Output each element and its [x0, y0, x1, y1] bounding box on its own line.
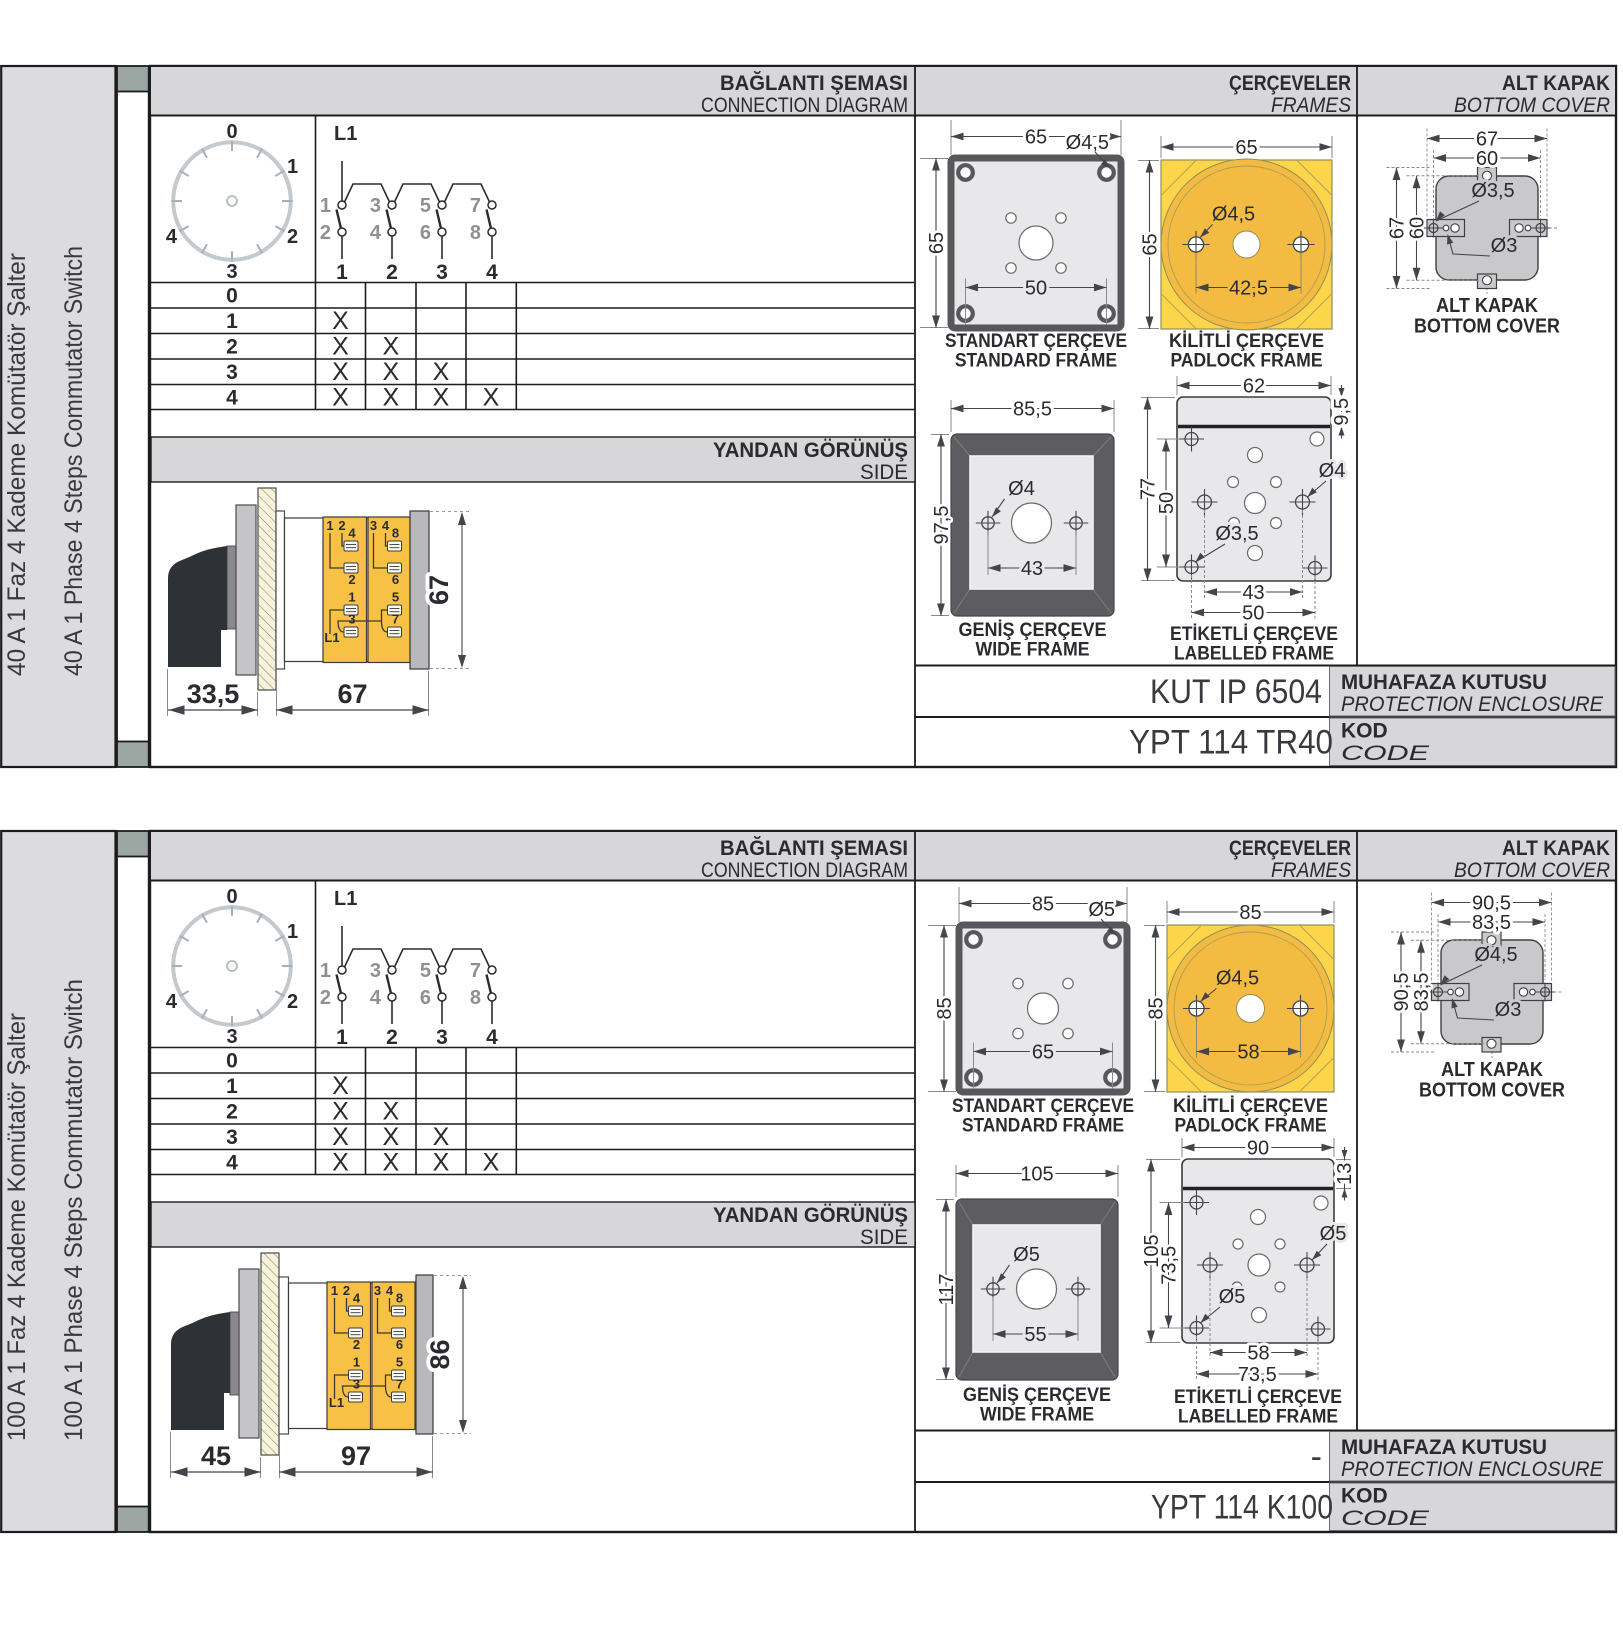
svg-text:100 A 1 Faz 4 Kademe Komütatör: 100 A 1 Faz 4 Kademe Komütatör Şalter — [3, 1013, 31, 1441]
svg-text:8: 8 — [470, 987, 481, 1009]
svg-text:STANDART ÇERÇEVE: STANDART ÇERÇEVE — [945, 331, 1127, 352]
svg-text:43: 43 — [1242, 582, 1264, 604]
svg-text:33,5: 33,5 — [187, 679, 240, 709]
svg-text:STANDART ÇERÇEVE: STANDART ÇERÇEVE — [952, 1096, 1134, 1117]
svg-text:X: X — [382, 333, 399, 361]
svg-text:ALT KAPAK: ALT KAPAK — [1502, 837, 1610, 860]
svg-text:6: 6 — [420, 222, 431, 244]
svg-text:X: X — [382, 1098, 399, 1126]
svg-text:8: 8 — [392, 526, 399, 541]
svg-text:BOTTOM COVER: BOTTOM COVER — [1454, 859, 1610, 882]
svg-text:42,5: 42,5 — [1229, 277, 1268, 299]
svg-text:4: 4 — [348, 526, 356, 541]
svg-text:105: 105 — [1020, 1163, 1053, 1185]
svg-text:65: 65 — [926, 232, 948, 254]
svg-text:7: 7 — [396, 1377, 403, 1392]
svg-text:1: 1 — [336, 1026, 348, 1049]
svg-text:Ø3: Ø3 — [1491, 235, 1518, 257]
svg-text:58: 58 — [1247, 1342, 1269, 1364]
svg-text:2: 2 — [320, 987, 331, 1009]
svg-text:3: 3 — [370, 960, 381, 982]
svg-text:X: X — [332, 333, 349, 361]
svg-text:60: 60 — [1476, 148, 1498, 170]
svg-text:6: 6 — [420, 987, 431, 1009]
svg-text:0: 0 — [226, 285, 238, 308]
svg-text:Ø5: Ø5 — [1013, 1244, 1040, 1266]
svg-text:KİLİTLİ ÇERÇEVE: KİLİTLİ ÇERÇEVE — [1173, 1096, 1328, 1117]
svg-text:X: X — [332, 1072, 349, 1100]
svg-text:2: 2 — [386, 1026, 398, 1049]
svg-text:4: 4 — [353, 1291, 361, 1306]
svg-text:YANDAN GÖRÜNÜŞ: YANDAN GÖRÜNÜŞ — [713, 1204, 908, 1227]
svg-text:62: 62 — [1243, 375, 1265, 397]
svg-text:X: X — [382, 384, 399, 412]
svg-text:73,5: 73,5 — [1158, 1246, 1180, 1285]
svg-text:1: 1 — [226, 1075, 238, 1098]
svg-text:2: 2 — [386, 261, 398, 284]
svg-text:4: 4 — [166, 991, 178, 1013]
svg-text:MUHAFAZA KUTUSU: MUHAFAZA KUTUSU — [1341, 671, 1547, 694]
svg-text:4: 4 — [486, 261, 498, 284]
svg-text:PADLOCK FRAME: PADLOCK FRAME — [1175, 1116, 1327, 1137]
svg-text:YPT 114 K100: YPT 114 K100 — [1151, 1489, 1333, 1527]
svg-text:L1: L1 — [329, 1395, 344, 1410]
svg-text:1: 1 — [353, 1355, 360, 1370]
svg-text:4: 4 — [486, 1026, 498, 1049]
svg-text:3: 3 — [353, 1377, 360, 1392]
svg-text:ALT KAPAK: ALT KAPAK — [1436, 295, 1539, 317]
svg-text:CODE: CODE — [1341, 1507, 1430, 1530]
svg-text:90,5: 90,5 — [1391, 973, 1413, 1012]
svg-text:1: 1 — [287, 156, 298, 178]
svg-text:X: X — [433, 384, 450, 412]
svg-text:MUHAFAZA KUTUSU: MUHAFAZA KUTUSU — [1341, 1436, 1547, 1459]
svg-text:40 A 1 Faz 4 Kademe Komütatör: 40 A 1 Faz 4 Kademe Komütatör Şalter — [3, 253, 31, 676]
svg-text:Ø3,5: Ø3,5 — [1471, 180, 1514, 202]
svg-text:ÇERÇEVELER: ÇERÇEVELER — [1229, 837, 1351, 860]
svg-text:X: X — [332, 358, 349, 386]
svg-text:3: 3 — [374, 1283, 381, 1298]
svg-text:83,5: 83,5 — [1472, 912, 1511, 934]
svg-text:1: 1 — [348, 590, 355, 605]
svg-text:Ø3: Ø3 — [1495, 999, 1522, 1021]
svg-text:X: X — [433, 1149, 450, 1177]
svg-text:85: 85 — [1032, 893, 1054, 915]
svg-text:Ø4: Ø4 — [1008, 478, 1035, 500]
svg-text:67: 67 — [1386, 217, 1408, 239]
svg-text:1: 1 — [287, 921, 298, 943]
svg-text:86: 86 — [425, 1339, 455, 1369]
svg-text:ALT KAPAK: ALT KAPAK — [1441, 1059, 1544, 1081]
svg-text:Ø4,5: Ø4,5 — [1474, 944, 1517, 966]
svg-text:BOTTOM COVER: BOTTOM COVER — [1419, 1080, 1565, 1102]
svg-text:ALT KAPAK: ALT KAPAK — [1502, 72, 1610, 95]
svg-text:6: 6 — [392, 572, 399, 587]
svg-text:85: 85 — [1145, 997, 1167, 1019]
svg-text:0: 0 — [226, 1050, 238, 1073]
svg-text:ÇERÇEVELER: ÇERÇEVELER — [1229, 72, 1351, 95]
svg-text:4: 4 — [370, 222, 382, 244]
svg-text:7: 7 — [470, 960, 481, 982]
svg-text:5: 5 — [396, 1355, 403, 1370]
svg-text:83,5: 83,5 — [1411, 973, 1433, 1012]
svg-text:X: X — [382, 1149, 399, 1177]
svg-text:73,5: 73,5 — [1238, 1364, 1277, 1386]
svg-text:X: X — [483, 384, 500, 412]
svg-text:L1: L1 — [334, 888, 357, 910]
svg-text:13: 13 — [1334, 1163, 1356, 1185]
svg-text:50: 50 — [1242, 602, 1264, 624]
svg-text:FRAMES: FRAMES — [1271, 859, 1351, 882]
svg-text:3: 3 — [348, 612, 355, 627]
svg-text:100 A 1 Phase 4 Steps Commutat: 100 A 1 Phase 4 Steps Commutator Switch — [60, 979, 88, 1441]
svg-text:Ø5: Ø5 — [1219, 1286, 1246, 1308]
svg-text:CONNECTION DIAGRAM: CONNECTION DIAGRAM — [701, 94, 908, 117]
svg-text:2: 2 — [338, 518, 345, 533]
svg-text:3: 3 — [226, 1126, 238, 1149]
svg-text:4: 4 — [226, 1152, 238, 1175]
svg-text:2: 2 — [226, 336, 238, 359]
svg-text:PADLOCK FRAME: PADLOCK FRAME — [1171, 351, 1323, 372]
svg-text:CODE: CODE — [1341, 742, 1430, 765]
svg-text:45: 45 — [201, 1441, 231, 1471]
svg-text:0: 0 — [226, 886, 237, 908]
svg-text:1: 1 — [326, 518, 333, 533]
svg-text:Ø4,5: Ø4,5 — [1212, 204, 1255, 226]
svg-text:X: X — [332, 307, 349, 335]
svg-text:STANDARD FRAME: STANDARD FRAME — [962, 1116, 1124, 1137]
svg-text:85,5: 85,5 — [1013, 398, 1052, 420]
svg-text:BAĞLANTI ŞEMASI: BAĞLANTI ŞEMASI — [720, 71, 908, 95]
svg-text:3: 3 — [226, 1026, 237, 1048]
svg-text:2: 2 — [226, 1101, 238, 1124]
svg-text:-: - — [1311, 1438, 1322, 1476]
svg-text:6: 6 — [396, 1337, 403, 1352]
svg-text:1: 1 — [320, 195, 331, 217]
svg-text:2: 2 — [287, 991, 298, 1013]
svg-text:65: 65 — [1139, 233, 1161, 255]
svg-text:67: 67 — [424, 575, 454, 605]
svg-text:ETİKETLİ ÇERÇEVE: ETİKETLİ ÇERÇEVE — [1170, 624, 1338, 645]
svg-text:X: X — [332, 1149, 349, 1177]
svg-text:X: X — [382, 1123, 399, 1151]
svg-text:65: 65 — [1235, 137, 1257, 159]
svg-text:3: 3 — [436, 261, 448, 284]
svg-text:58: 58 — [1237, 1041, 1259, 1063]
svg-text:67: 67 — [337, 679, 367, 709]
svg-text:Ø4: Ø4 — [1319, 460, 1346, 482]
svg-text:65: 65 — [1032, 1041, 1054, 1063]
svg-text:40 A 1 Phase 4 Steps Commutato: 40 A 1 Phase 4 Steps Commutator Switch — [60, 246, 88, 676]
svg-text:KİLİTLİ ÇERÇEVE: KİLİTLİ ÇERÇEVE — [1169, 331, 1324, 352]
svg-text:X: X — [433, 1123, 450, 1151]
svg-text:LABELLED FRAME: LABELLED FRAME — [1178, 1407, 1338, 1428]
svg-text:8: 8 — [470, 222, 481, 244]
svg-text:4: 4 — [226, 387, 238, 410]
svg-text:3: 3 — [370, 518, 377, 533]
svg-text:2: 2 — [343, 1283, 350, 1298]
svg-text:4: 4 — [382, 518, 390, 533]
svg-text:L1: L1 — [334, 123, 357, 145]
svg-text:Ø4,5: Ø4,5 — [1216, 968, 1259, 990]
svg-text:PROTECTION ENCLOSURE: PROTECTION ENCLOSURE — [1341, 1458, 1604, 1481]
svg-text:KOD: KOD — [1341, 720, 1388, 743]
svg-text:1: 1 — [336, 261, 348, 284]
svg-text:X: X — [332, 1123, 349, 1151]
svg-text:90: 90 — [1247, 1137, 1269, 1159]
svg-text:X: X — [382, 358, 399, 386]
svg-text:3: 3 — [370, 195, 381, 217]
svg-text:1: 1 — [331, 1283, 338, 1298]
svg-text:5: 5 — [420, 195, 431, 217]
svg-text:55: 55 — [1024, 1324, 1046, 1346]
svg-text:L1: L1 — [324, 630, 339, 645]
svg-text:FRAMES: FRAMES — [1271, 94, 1351, 117]
svg-text:97: 97 — [341, 1441, 371, 1471]
svg-text:YANDAN GÖRÜNÜŞ: YANDAN GÖRÜNÜŞ — [713, 439, 908, 462]
svg-text:4: 4 — [166, 226, 178, 248]
svg-text:KOD: KOD — [1341, 1485, 1388, 1508]
svg-text:BOTTOM COVER: BOTTOM COVER — [1414, 316, 1560, 338]
svg-text:60: 60 — [1406, 217, 1428, 239]
svg-text:X: X — [433, 358, 450, 386]
svg-text:CONNECTION DIAGRAM: CONNECTION DIAGRAM — [701, 859, 908, 882]
svg-text:SIDE: SIDE — [860, 1226, 908, 1249]
svg-text:9,5: 9,5 — [1331, 398, 1353, 426]
svg-text:BOTTOM COVER: BOTTOM COVER — [1454, 94, 1610, 117]
svg-text:65: 65 — [1025, 126, 1047, 148]
svg-text:X: X — [332, 1098, 349, 1126]
svg-text:50: 50 — [1025, 277, 1047, 299]
svg-text:0: 0 — [226, 121, 237, 143]
svg-text:YPT 114 TR40: YPT 114 TR40 — [1129, 724, 1333, 762]
svg-text:5: 5 — [392, 590, 399, 605]
svg-text:Ø5: Ø5 — [1320, 1223, 1347, 1245]
svg-text:1: 1 — [226, 310, 238, 333]
svg-text:8: 8 — [396, 1291, 403, 1306]
svg-text:WIDE FRAME: WIDE FRAME — [976, 640, 1090, 661]
svg-text:2: 2 — [348, 572, 355, 587]
svg-text:97,5: 97,5 — [931, 506, 953, 545]
svg-text:X: X — [483, 1149, 500, 1177]
svg-text:Ø3,5: Ø3,5 — [1215, 523, 1258, 545]
svg-text:LABELLED FRAME: LABELLED FRAME — [1174, 644, 1334, 665]
svg-text:GENİŞ ÇERÇEVE: GENİŞ ÇERÇEVE — [963, 1385, 1111, 1406]
svg-text:Ø5: Ø5 — [1088, 899, 1115, 921]
svg-text:117: 117 — [936, 1274, 958, 1306]
svg-text:WIDE FRAME: WIDE FRAME — [980, 1405, 1094, 1426]
svg-text:ETİKETLİ ÇERÇEVE: ETİKETLİ ÇERÇEVE — [1174, 1387, 1342, 1408]
svg-text:3: 3 — [436, 1026, 448, 1049]
svg-text:3: 3 — [226, 361, 238, 384]
svg-text:85: 85 — [1239, 902, 1261, 924]
svg-text:2: 2 — [353, 1337, 360, 1352]
svg-text:43: 43 — [1021, 558, 1043, 580]
svg-text:X: X — [332, 384, 349, 412]
svg-text:KUT IP 6504: KUT IP 6504 — [1150, 673, 1322, 711]
svg-text:3: 3 — [226, 261, 237, 283]
svg-text:2: 2 — [320, 222, 331, 244]
svg-text:SIDE: SIDE — [860, 461, 908, 484]
svg-text:PROTECTION ENCLOSURE: PROTECTION ENCLOSURE — [1341, 693, 1604, 716]
svg-text:STANDARD FRAME: STANDARD FRAME — [955, 351, 1117, 372]
svg-text:7: 7 — [470, 195, 481, 217]
svg-text:85: 85 — [934, 997, 956, 1019]
svg-text:1: 1 — [320, 960, 331, 982]
svg-text:2: 2 — [287, 226, 298, 248]
svg-text:50: 50 — [1156, 492, 1178, 514]
svg-text:BAĞLANTI ŞEMASI: BAĞLANTI ŞEMASI — [720, 836, 908, 860]
svg-text:GENİŞ ÇERÇEVE: GENİŞ ÇERÇEVE — [959, 620, 1107, 641]
svg-text:Ø4,5: Ø4,5 — [1066, 132, 1109, 154]
svg-text:4: 4 — [370, 987, 382, 1009]
svg-text:5: 5 — [420, 960, 431, 982]
svg-text:4: 4 — [386, 1283, 394, 1298]
svg-text:7: 7 — [392, 612, 399, 627]
